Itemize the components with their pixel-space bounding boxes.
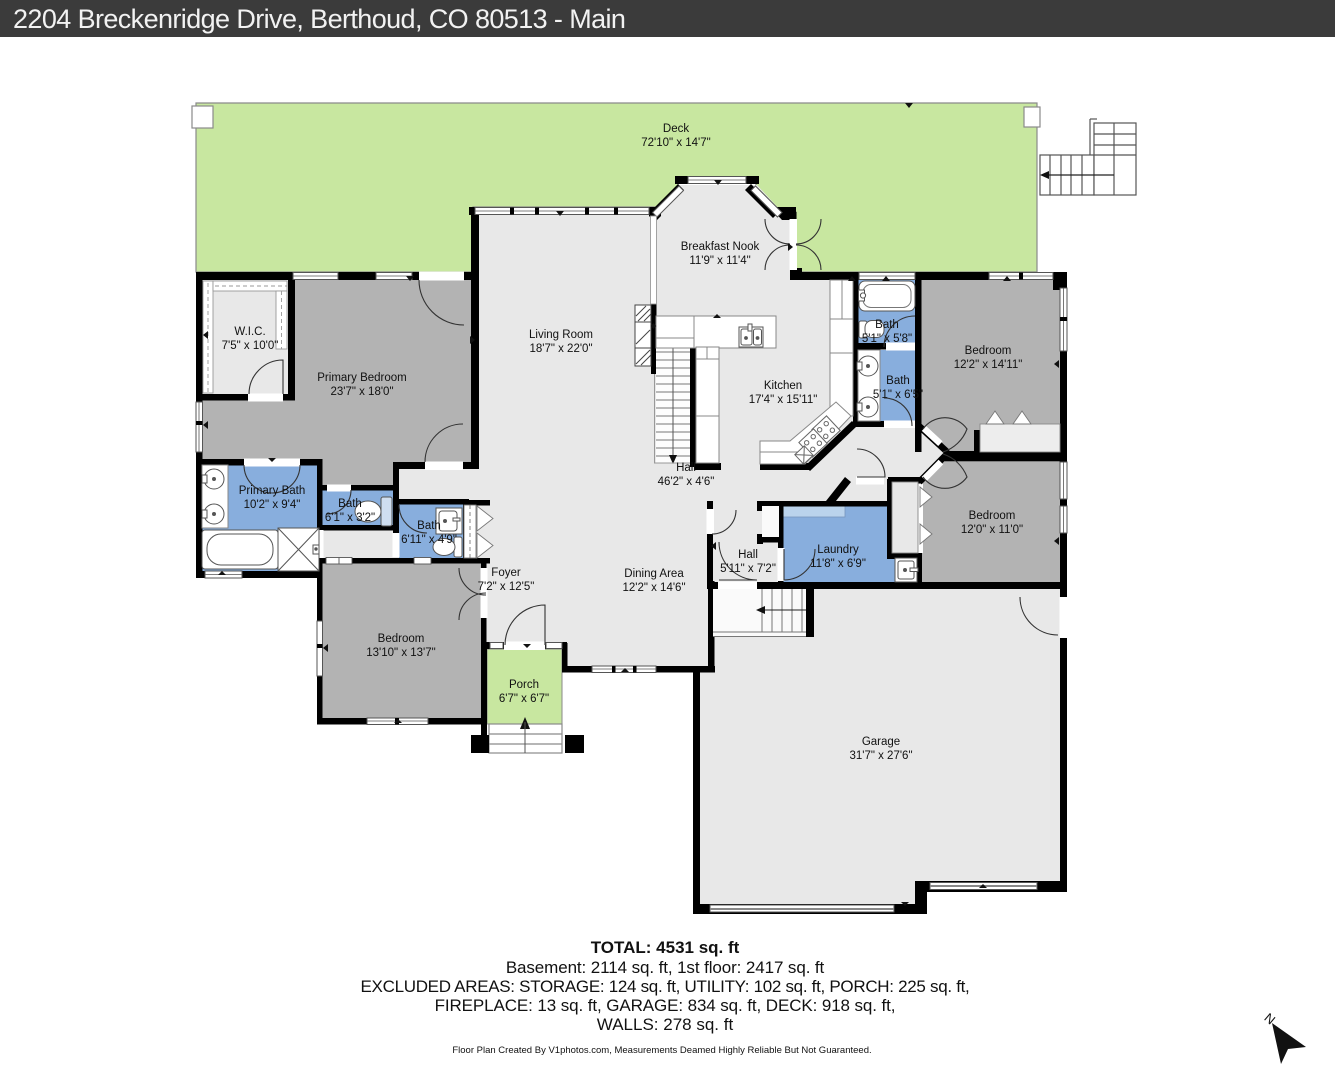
svg-text:Bath: Bath bbox=[338, 498, 362, 510]
svg-text:17'4" x 15'11": 17'4" x 15'11" bbox=[749, 394, 818, 406]
svg-text:6'1" x 3'2": 6'1" x 3'2" bbox=[325, 512, 375, 524]
svg-text:Dining Area: Dining Area bbox=[624, 568, 684, 580]
svg-text:18'7" x 22'0": 18'7" x 22'0" bbox=[529, 343, 592, 355]
svg-text:Bedroom: Bedroom bbox=[965, 345, 1012, 357]
svg-text:Porch: Porch bbox=[509, 679, 539, 691]
svg-text:12'2" x 14'6": 12'2" x 14'6" bbox=[622, 582, 685, 594]
svg-text:Deck: Deck bbox=[663, 123, 689, 135]
svg-text:Kitchen: Kitchen bbox=[764, 380, 802, 392]
svg-text:W.I.C.: W.I.C. bbox=[234, 326, 265, 338]
svg-text:2204 Breckenridge Drive, Berth: 2204 Breckenridge Drive, Berthoud, CO 80… bbox=[13, 4, 625, 34]
svg-text:Hall: Hall bbox=[738, 549, 758, 561]
svg-text:13'10" x 13'7": 13'10" x 13'7" bbox=[366, 647, 435, 659]
svg-text:46'2" x 4'6": 46'2" x 4'6" bbox=[658, 476, 715, 488]
svg-text:6'7" x 6'7": 6'7" x 6'7" bbox=[499, 693, 549, 705]
svg-text:Hall: Hall bbox=[676, 462, 696, 474]
svg-text:Living Room: Living Room bbox=[529, 329, 593, 341]
svg-text:5'1" x 5'8": 5'1" x 5'8" bbox=[862, 333, 912, 345]
svg-text:Bath: Bath bbox=[417, 520, 441, 532]
svg-text:Basement: 2114 sq. ft, 1st flo: Basement: 2114 sq. ft, 1st floor: 2417 s… bbox=[506, 958, 825, 977]
svg-text:Breakfast Nook: Breakfast Nook bbox=[681, 241, 760, 253]
svg-text:TOTAL: 4531 sq. ft: TOTAL: 4531 sq. ft bbox=[591, 938, 740, 957]
svg-text:Bedroom: Bedroom bbox=[378, 633, 425, 645]
svg-text:FIREPLACE: 13 sq. ft, GARAGE:: FIREPLACE: 13 sq. ft, GARAGE: 834 sq. ft… bbox=[435, 996, 896, 1015]
svg-text:Foyer: Foyer bbox=[491, 567, 521, 579]
svg-text:31'7" x 27'6": 31'7" x 27'6" bbox=[849, 750, 912, 762]
svg-text:Primary Bedroom: Primary Bedroom bbox=[317, 372, 406, 384]
svg-text:6'11" x 4'9": 6'11" x 4'9" bbox=[401, 534, 457, 546]
svg-text:5'11" x 7'2": 5'11" x 7'2" bbox=[720, 563, 776, 575]
svg-text:EXCLUDED AREAS: STORAGE: 124 s: EXCLUDED AREAS: STORAGE: 124 sq. ft, UTI… bbox=[361, 977, 970, 996]
svg-text:72'10" x 14'7": 72'10" x 14'7" bbox=[641, 137, 710, 149]
svg-text:10'2" x 9'4": 10'2" x 9'4" bbox=[244, 499, 301, 511]
svg-text:Primary Bath: Primary Bath bbox=[239, 485, 305, 497]
svg-text:7'5" x 10'0": 7'5" x 10'0" bbox=[222, 340, 279, 352]
svg-text:7'2" x 12'5": 7'2" x 12'5" bbox=[478, 581, 535, 593]
svg-text:Bedroom: Bedroom bbox=[969, 510, 1016, 522]
svg-text:12'0" x 11'0": 12'0" x 11'0" bbox=[961, 524, 1023, 536]
svg-text:Garage: Garage bbox=[862, 736, 900, 748]
svg-text:Laundry: Laundry bbox=[817, 544, 859, 556]
svg-text:Floor Plan Created By V1photos: Floor Plan Created By V1photos.com, Meas… bbox=[452, 1045, 871, 1056]
svg-text:Bath: Bath bbox=[875, 319, 899, 331]
svg-text:5'1" x 6'5": 5'1" x 6'5" bbox=[873, 389, 923, 401]
svg-text:12'2" x 14'11": 12'2" x 14'11" bbox=[954, 359, 1023, 371]
svg-text:WALLS: 278 sq. ft: WALLS: 278 sq. ft bbox=[597, 1015, 734, 1034]
svg-text:11'9" x 11'4": 11'9" x 11'4" bbox=[689, 255, 750, 267]
svg-text:23'7" x 18'0": 23'7" x 18'0" bbox=[330, 386, 393, 398]
svg-text:Bath: Bath bbox=[886, 375, 910, 387]
svg-text:11'8" x 6'9": 11'8" x 6'9" bbox=[810, 558, 866, 570]
